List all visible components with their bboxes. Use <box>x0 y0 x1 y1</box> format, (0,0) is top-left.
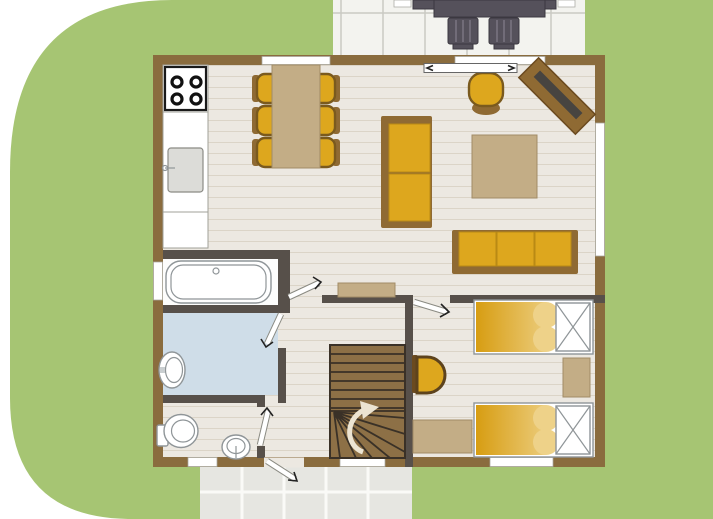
patio-chair <box>448 18 478 49</box>
kitchen <box>163 65 209 248</box>
sofa-two-seat <box>381 116 432 228</box>
burner-icon <box>191 94 201 104</box>
bed-pillow <box>556 303 590 351</box>
patio-chair <box>413 0 435 9</box>
dresser <box>413 420 472 453</box>
garden-path <box>200 467 412 519</box>
toilet-window <box>188 458 217 467</box>
coffee-table <box>472 135 537 198</box>
floor-plan-canvas <box>0 0 713 519</box>
bathtub-window <box>154 262 163 300</box>
bed-top <box>474 300 593 354</box>
kitchen-sink <box>163 148 204 192</box>
bed-pillow <box>556 406 590 454</box>
bathroom-sink <box>159 352 185 388</box>
patio-side-chair <box>558 0 575 7</box>
bedroom-window <box>490 458 553 467</box>
hand-basin <box>222 435 250 459</box>
bathtub <box>166 261 271 303</box>
faucet-icon <box>160 367 165 373</box>
nightstand <box>563 358 590 397</box>
patio-slider-door <box>424 64 517 73</box>
kitchen-window <box>262 57 330 65</box>
burner-icon <box>191 77 201 87</box>
patio-chair <box>489 18 519 49</box>
sofa-three-seat <box>452 230 578 274</box>
patio-side-chair <box>394 0 411 7</box>
half-round-chair <box>412 355 445 393</box>
living-room-window <box>596 123 605 256</box>
burner-icon <box>172 77 182 87</box>
bed-bottom <box>474 403 593 457</box>
sideboard <box>338 283 395 297</box>
stairs <box>330 345 405 458</box>
dining-set <box>252 65 340 168</box>
burner-icon <box>172 94 182 104</box>
patio-table <box>434 0 545 17</box>
floor-plan-page <box>0 0 713 519</box>
stove <box>165 67 206 110</box>
swivel-chair <box>469 73 503 106</box>
dining-table <box>272 65 320 168</box>
